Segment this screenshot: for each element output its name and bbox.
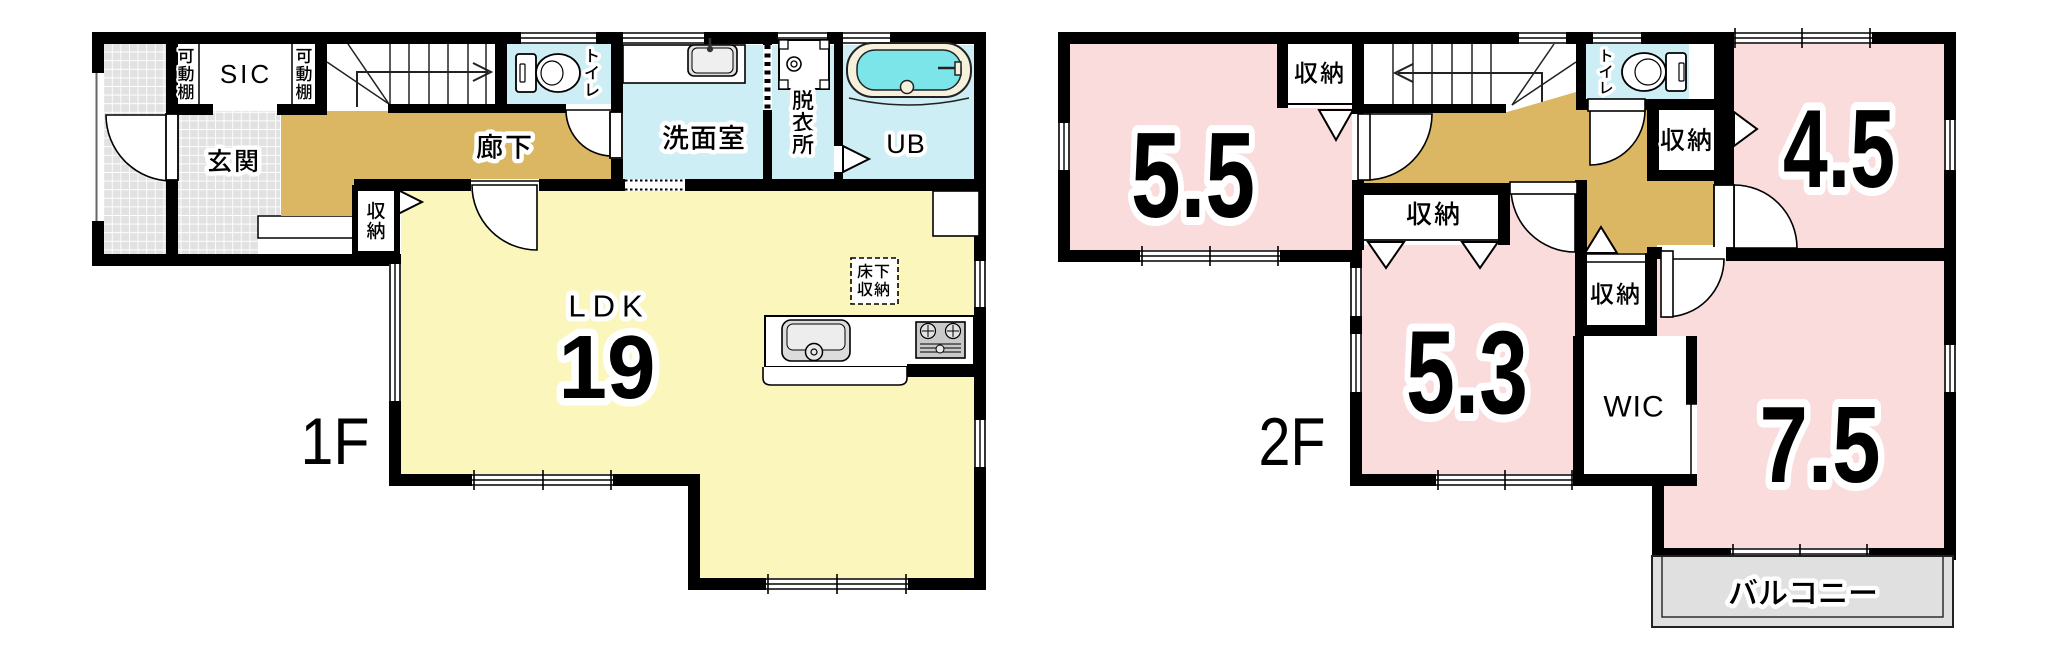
- svg-text:WIC: WIC: [1603, 391, 1664, 424]
- svg-text:1F: 1F: [301, 404, 370, 478]
- svg-text:UB: UB: [886, 129, 926, 159]
- svg-text:19: 19: [559, 318, 656, 418]
- svg-text:2F: 2F: [1259, 404, 1326, 480]
- svg-text:7.5: 7.5: [1760, 384, 1881, 506]
- svg-text:5.5: 5.5: [1131, 107, 1255, 243]
- svg-text:SIC: SIC: [220, 59, 272, 89]
- svg-text:4.5: 4.5: [1783, 87, 1895, 211]
- svg-text:5.3: 5.3: [1406, 307, 1528, 439]
